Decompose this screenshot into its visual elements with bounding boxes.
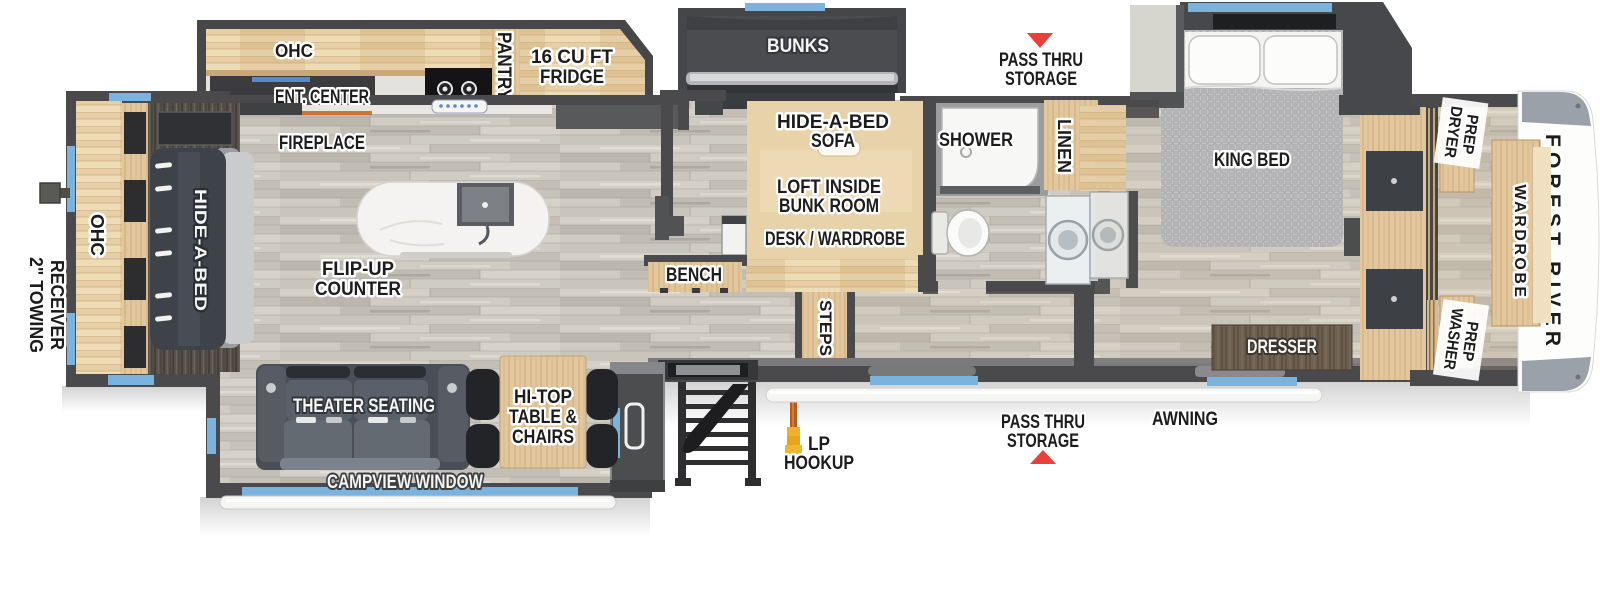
svg-text:AWNING: AWNING — [1152, 409, 1218, 430]
svg-text:BUNK ROOM: BUNK ROOM — [779, 196, 879, 217]
svg-text:COUNTER: COUNTER — [315, 279, 401, 300]
svg-text:DRESSER: DRESSER — [1247, 337, 1317, 358]
svg-text:KING BED: KING BED — [1214, 150, 1290, 171]
svg-text:FRIDGE: FRIDGE — [540, 67, 604, 88]
svg-text:HI-TOP: HI-TOP — [514, 387, 572, 408]
svg-text:SOFA: SOFA — [811, 131, 855, 152]
svg-text:HOOKUP: HOOKUP — [784, 453, 854, 474]
svg-text:DESK / WARDROBE: DESK / WARDROBE — [765, 229, 905, 250]
svg-text:2" TOWING: 2" TOWING — [26, 257, 46, 353]
svg-text:SHOWER: SHOWER — [939, 130, 1013, 151]
svg-text:WARDROBE: WARDROBE — [1511, 184, 1528, 299]
svg-text:RECEIVER: RECEIVER — [47, 260, 67, 350]
svg-text:HIDE-A-BED: HIDE-A-BED — [191, 189, 210, 311]
svg-text:CHAIRS: CHAIRS — [512, 427, 574, 448]
svg-text:FIREPLACE: FIREPLACE — [279, 133, 365, 154]
svg-text:STORAGE: STORAGE — [1007, 431, 1079, 452]
svg-text:OHC: OHC — [87, 214, 107, 256]
svg-text:LP: LP — [808, 434, 830, 455]
svg-text:CAMPVIEW WINDOW: CAMPVIEW WINDOW — [327, 472, 483, 493]
svg-text:LINEN: LINEN — [1054, 119, 1074, 173]
svg-text:STEPS: STEPS — [816, 300, 835, 356]
svg-text:LOFT INSIDE: LOFT INSIDE — [777, 177, 881, 198]
svg-text:PASS THRU: PASS THRU — [1001, 412, 1085, 433]
svg-text:STORAGE: STORAGE — [1005, 69, 1077, 90]
svg-text:FLIP-UP: FLIP-UP — [322, 259, 394, 280]
svg-text:16 CU FT: 16 CU FT — [531, 47, 613, 68]
svg-text:OHC: OHC — [275, 41, 313, 61]
svg-text:THEATER SEATING: THEATER SEATING — [293, 396, 435, 417]
svg-text:PASS THRU: PASS THRU — [999, 50, 1083, 71]
svg-text:HIDE-A-BED: HIDE-A-BED — [777, 112, 889, 133]
svg-text:PANTRY: PANTRY — [493, 32, 514, 100]
svg-text:BUNKS: BUNKS — [767, 36, 829, 57]
svg-text:BENCH: BENCH — [666, 265, 722, 286]
svg-text:TABLE &: TABLE & — [509, 407, 577, 428]
